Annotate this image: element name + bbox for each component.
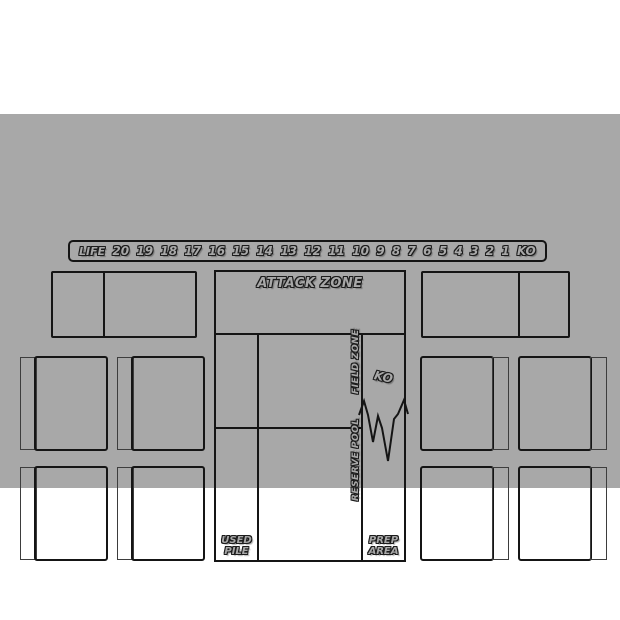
card-strip <box>590 357 607 450</box>
life-value-8[interactable]: 8 <box>392 245 400 257</box>
life-value-20[interactable]: 20 <box>112 245 129 257</box>
card-slot[interactable] <box>518 356 592 451</box>
life-value-1[interactable]: 1 <box>501 245 509 257</box>
card-slot[interactable] <box>131 356 205 451</box>
card-zone-left-col2-row2[interactable] <box>117 466 205 561</box>
life-value-14[interactable]: 14 <box>256 245 273 257</box>
card-strip <box>492 467 509 560</box>
card-slot[interactable] <box>131 466 205 561</box>
center-play-panel: ATTACK ZONE FIELD ZONE RESERVE POOL KO U… <box>214 270 406 562</box>
used-pile-column-line <box>257 333 259 560</box>
card-zone-right-col1-row2[interactable] <box>420 466 508 561</box>
life-value-2[interactable]: 2 <box>486 245 494 257</box>
life-value-12[interactable]: 12 <box>304 245 321 257</box>
life-value-15[interactable]: 15 <box>232 245 249 257</box>
life-value-4[interactable]: 4 <box>454 245 462 257</box>
card-zone-right-col1-row1[interactable] <box>420 356 508 451</box>
card-slot[interactable] <box>34 466 108 561</box>
card-zone-left-col2-row1[interactable] <box>117 356 205 451</box>
life-value-13[interactable]: 13 <box>280 245 297 257</box>
life-track-label: LIFE <box>79 246 105 257</box>
used-pile-label: USED PILE <box>216 535 257 557</box>
card-zone-right-col2-row2[interactable] <box>518 466 606 561</box>
card-zone-left-col1-row2[interactable] <box>20 466 108 561</box>
life-value-9[interactable]: 9 <box>376 245 384 257</box>
playmat-image: LIFE 2019181716151413121110987654321KO <box>0 0 620 620</box>
card-slot[interactable] <box>34 356 108 451</box>
life-value-19[interactable]: 19 <box>136 245 153 257</box>
used-pile-line1: USED <box>221 535 251 546</box>
ko-zone-label: KO <box>362 366 405 388</box>
ko-burst-icon <box>354 396 412 466</box>
card-strip <box>590 467 607 560</box>
card-slot-pair-top-left[interactable] <box>51 271 197 338</box>
prep-area-label: PREP AREA <box>363 535 404 557</box>
prep-area-line2: AREA <box>368 546 398 557</box>
card-slot[interactable] <box>420 356 494 451</box>
life-value-3[interactable]: 3 <box>470 245 478 257</box>
card-zone-right-col2-row1[interactable] <box>518 356 606 451</box>
field-reserve-divider-line <box>216 427 363 429</box>
playmat-surface: LIFE 2019181716151413121110987654321KO <box>0 114 620 488</box>
card-zone-left-col1-row1[interactable] <box>20 356 108 451</box>
life-value-16[interactable]: 16 <box>208 245 225 257</box>
life-value-17[interactable]: 17 <box>184 245 201 257</box>
life-value-KO[interactable]: KO <box>517 245 536 257</box>
life-value-6[interactable]: 6 <box>423 245 431 257</box>
life-track: LIFE 2019181716151413121110987654321KO <box>68 240 547 262</box>
life-value-18[interactable]: 18 <box>160 245 177 257</box>
life-value-10[interactable]: 10 <box>352 245 369 257</box>
card-strip <box>492 357 509 450</box>
life-value-5[interactable]: 5 <box>439 245 447 257</box>
pair-divider-line <box>103 273 105 336</box>
field-zone-label: FIELD ZONE <box>351 336 361 394</box>
card-slot[interactable] <box>420 466 494 561</box>
used-pile-line2: PILE <box>224 546 248 557</box>
life-value-11[interactable]: 11 <box>328 245 345 257</box>
card-slot[interactable] <box>518 466 592 561</box>
card-slot-pair-top-right[interactable] <box>421 271 570 338</box>
prep-area-line1: PREP <box>369 535 398 546</box>
attack-zone-label: ATTACK ZONE <box>216 276 404 291</box>
attack-zone-divider-line <box>216 333 404 335</box>
pair-divider-line <box>518 273 520 336</box>
life-value-7[interactable]: 7 <box>408 245 416 257</box>
